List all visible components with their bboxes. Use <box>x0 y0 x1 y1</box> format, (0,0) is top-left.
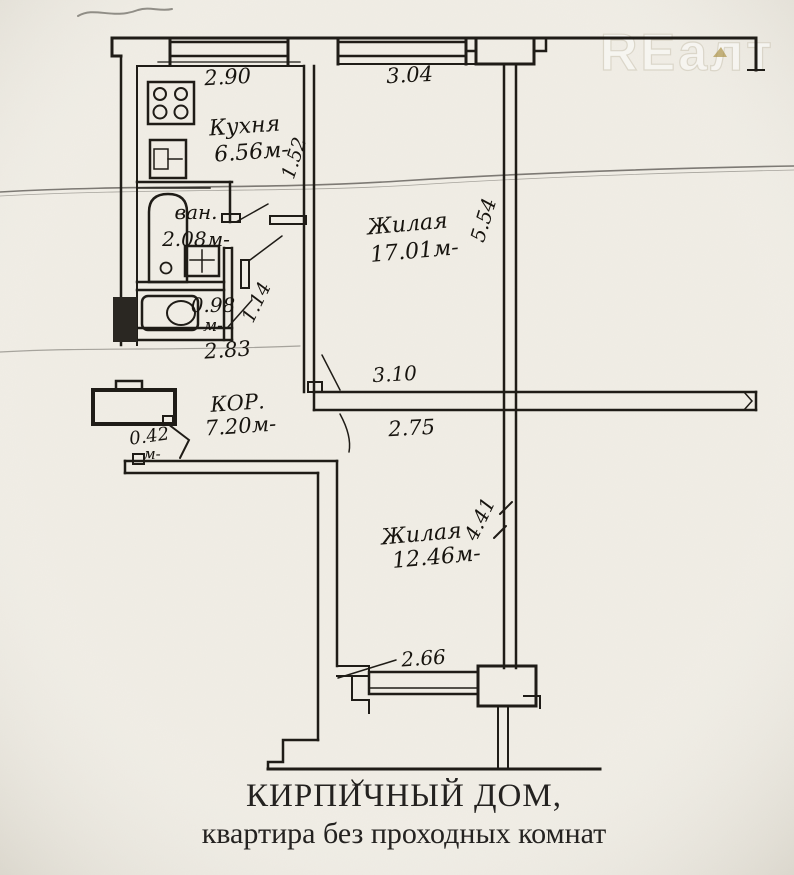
floor-plan-svg: REалт <box>0 0 794 875</box>
room-unit-wc: м- <box>203 316 223 336</box>
dim-corridor-span: 2.83 <box>202 336 251 363</box>
dim-bottom-window: 2.66 <box>399 644 446 671</box>
caption-line-1: КИРПИЧНЫЙ ДОМ, <box>246 777 562 814</box>
room-area-wc: 0.98 <box>191 293 236 317</box>
room-area-kitchen: 6.56м- <box>213 137 289 167</box>
dim-mid-wall-lower: 2.75 <box>387 415 436 441</box>
caption: КИРПИЧНЫЙ ДОМ, квартира без проходных ко… <box>202 777 607 850</box>
dim-kitchen-window: 2.90 <box>203 64 252 90</box>
wall-block <box>113 297 137 342</box>
room-area-corridor: 7.20м- <box>204 412 277 441</box>
scanned-floor-plan: REалт <box>0 0 794 875</box>
room-label-kitchen: Кухня <box>207 112 281 142</box>
realt-watermark: REалт <box>600 24 775 82</box>
room-label-bathroom: ван. <box>174 200 217 224</box>
dim-mid-wall-upper: 3.10 <box>372 361 418 387</box>
room-area-bathroom: 2.08м- <box>161 227 230 251</box>
caption-line-2: квартира без проходных комнат <box>202 817 607 850</box>
dim-living-top-window: 3.04 <box>386 62 434 88</box>
dim-entry-unit: м- <box>143 445 161 463</box>
